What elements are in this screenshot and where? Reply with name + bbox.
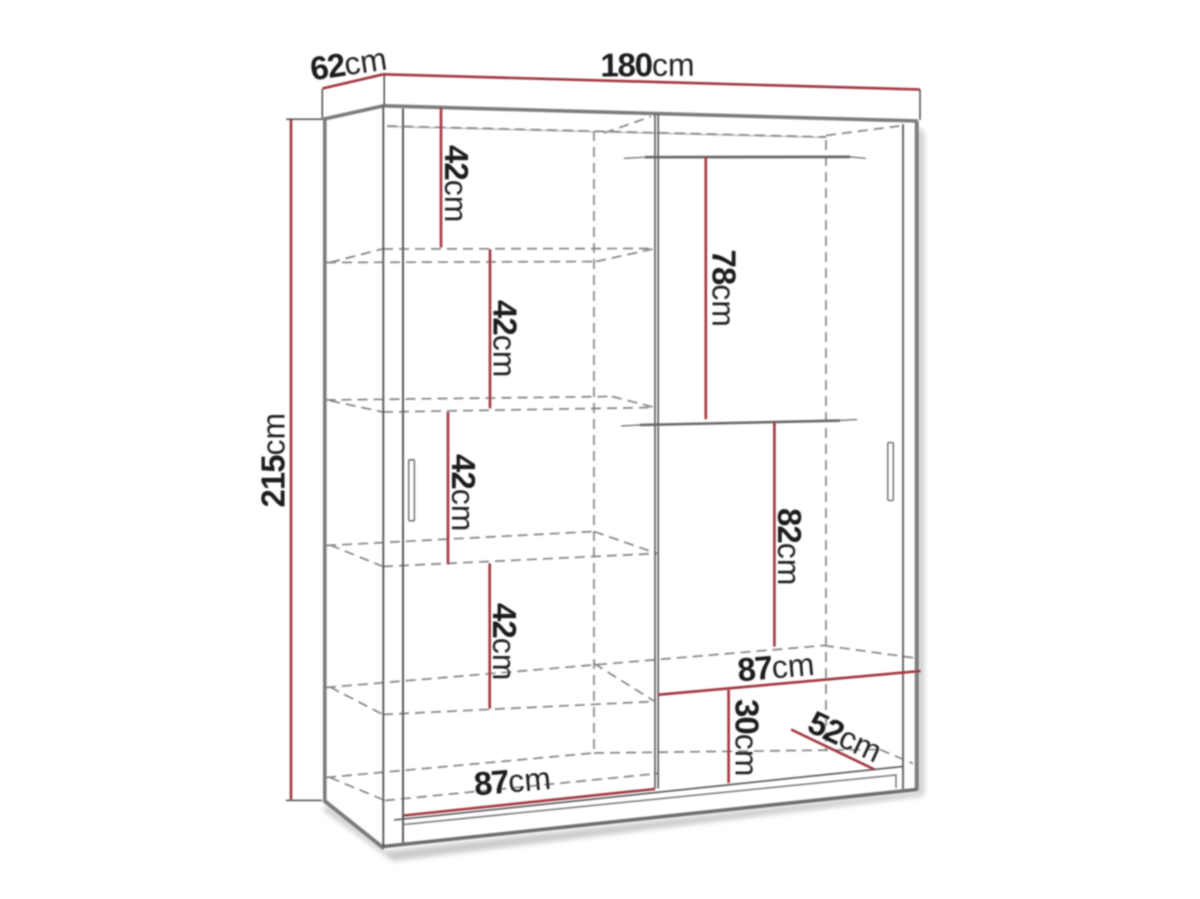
svg-text:82cm: 82cm xyxy=(771,508,808,585)
svg-text:42cm: 42cm xyxy=(445,454,482,531)
svg-text:180cm: 180cm xyxy=(600,46,694,84)
svg-text:42cm: 42cm xyxy=(486,603,523,680)
svg-text:87cm: 87cm xyxy=(736,645,816,689)
svg-text:78cm: 78cm xyxy=(706,250,743,327)
svg-text:30cm: 30cm xyxy=(729,699,766,776)
svg-text:42cm: 42cm xyxy=(487,300,524,377)
svg-text:87cm: 87cm xyxy=(472,759,552,803)
svg-text:42cm: 42cm xyxy=(438,145,475,222)
svg-text:215cm: 215cm xyxy=(255,413,292,508)
